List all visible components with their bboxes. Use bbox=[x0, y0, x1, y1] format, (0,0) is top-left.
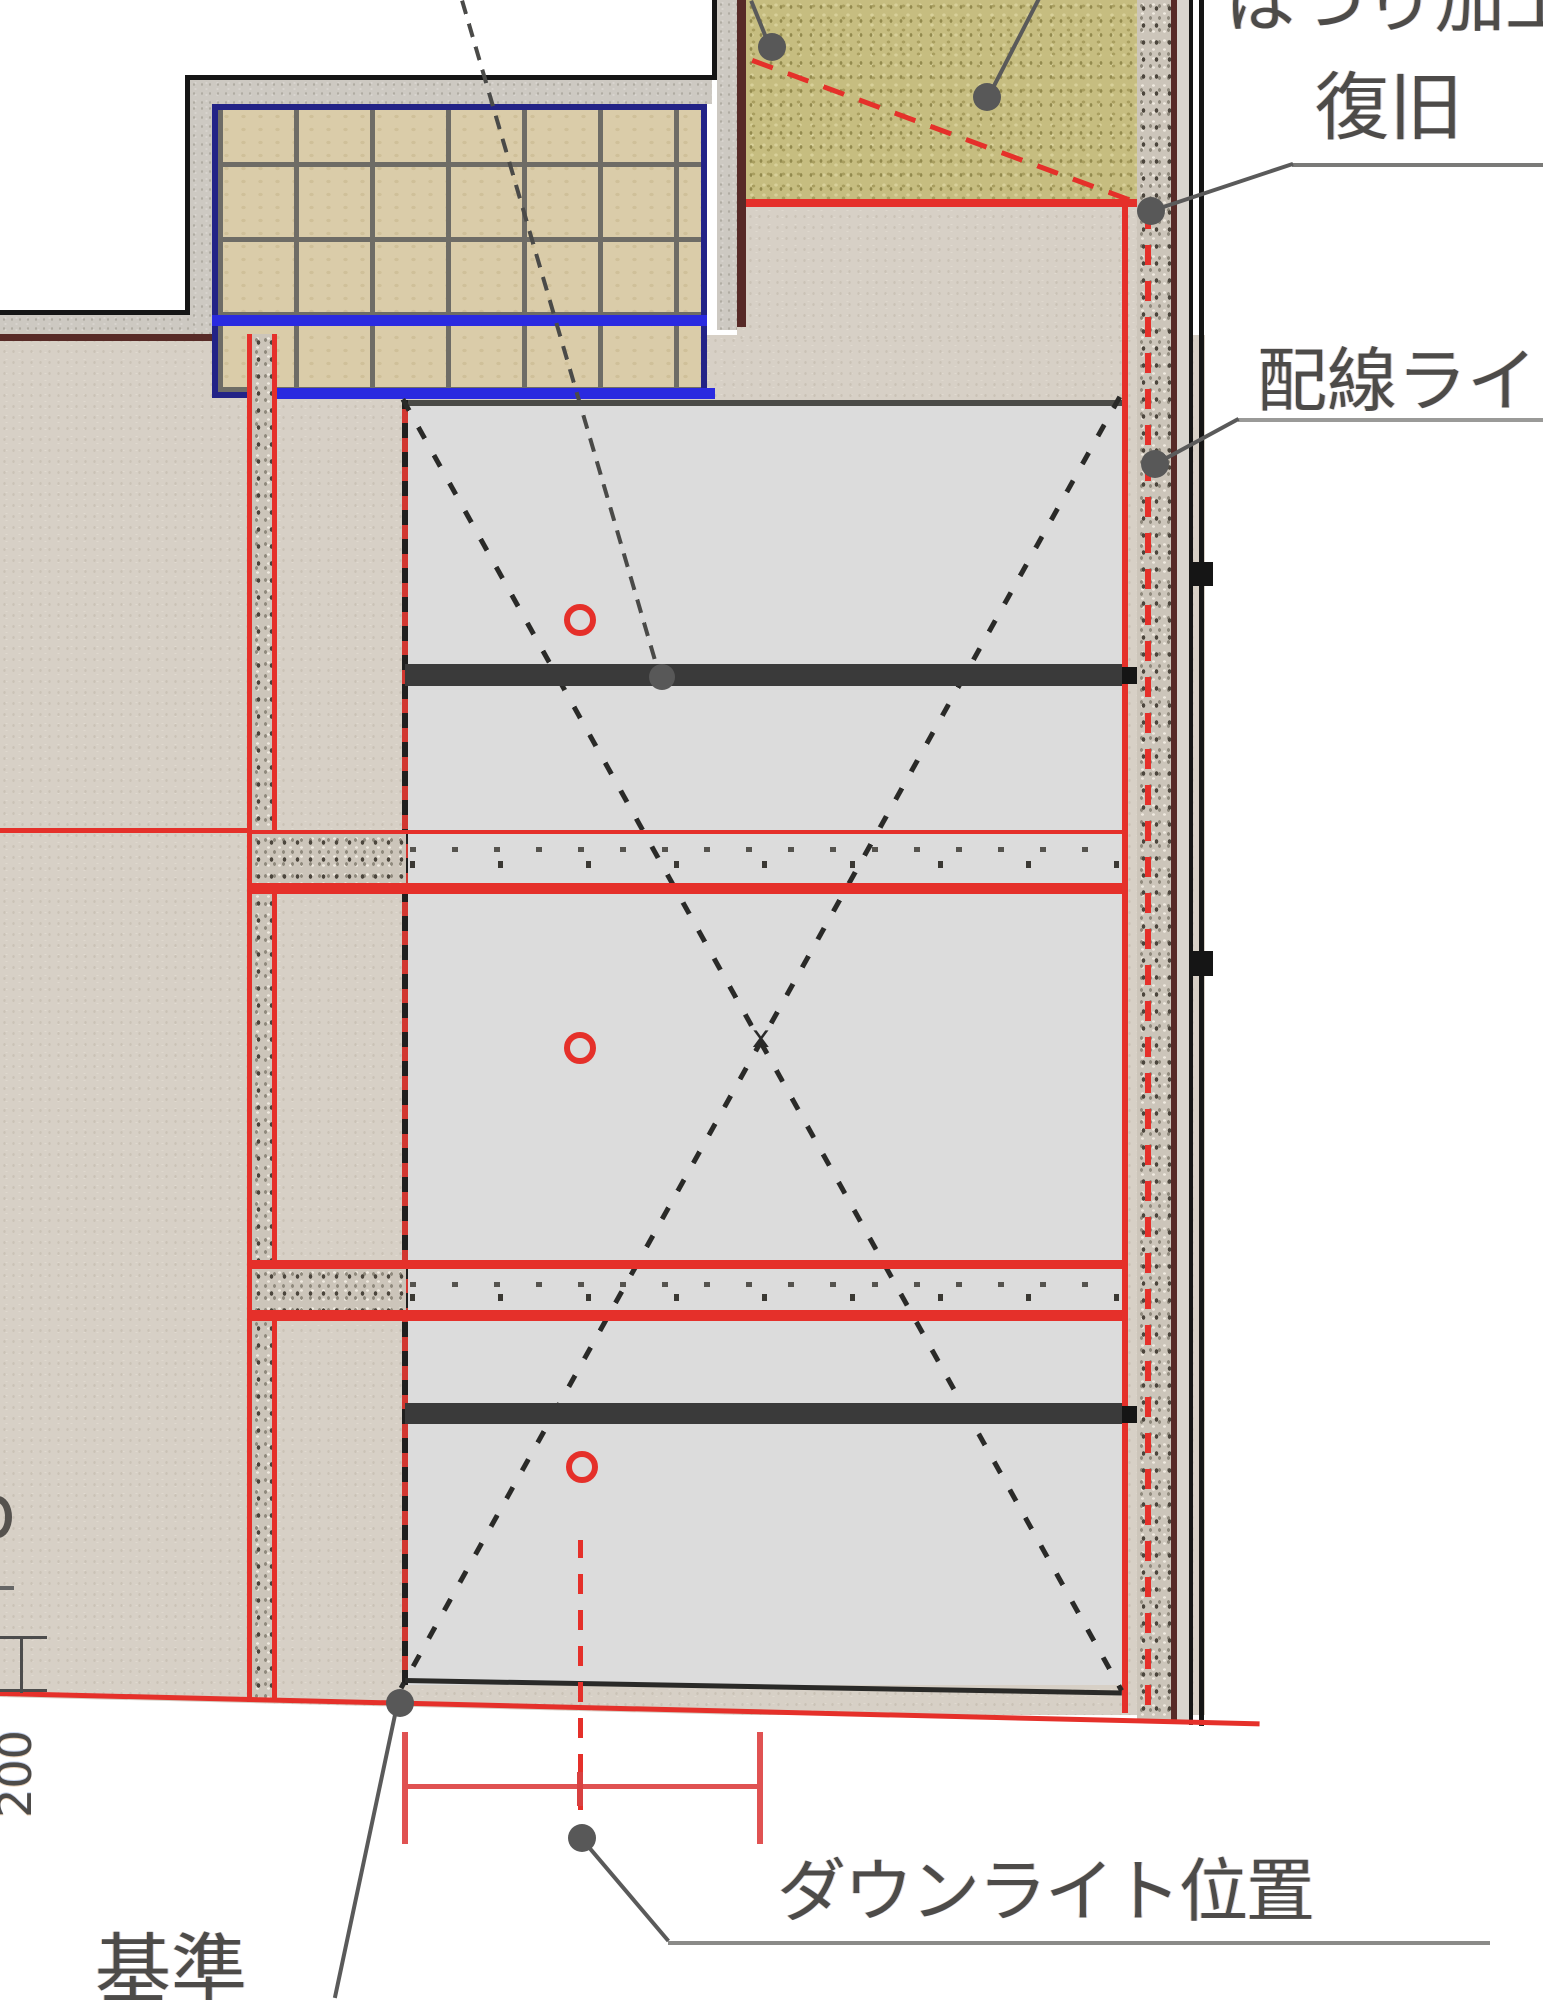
downlight-circle-2 bbox=[564, 1032, 596, 1064]
layout-line-green-bottom bbox=[737, 199, 1148, 207]
wall-face-line-a bbox=[1189, 0, 1193, 1725]
downlight-circle-1 bbox=[564, 604, 596, 636]
band2-top-line bbox=[250, 1260, 1122, 1269]
mortar-band-top bbox=[190, 80, 712, 104]
band1-bottom-line bbox=[250, 883, 1122, 894]
node-downlight bbox=[568, 1824, 596, 1852]
node-green-1 bbox=[758, 33, 786, 61]
diagonal-center-mark: x bbox=[752, 1022, 770, 1054]
node-restoration bbox=[1137, 197, 1165, 225]
downlight-label-underline bbox=[668, 1941, 1490, 1945]
band2-dot-row bbox=[410, 1282, 1122, 1287]
downlight-position-label: ダウンライト位置 bbox=[777, 1856, 1313, 1928]
edge-tick bbox=[0, 1586, 14, 1590]
dim200-tick-top bbox=[0, 1636, 47, 1639]
band1-top-line bbox=[250, 830, 1122, 834]
node-datum bbox=[386, 1689, 414, 1717]
mortar-band-left bbox=[190, 104, 212, 334]
concrete-field-upper-right bbox=[737, 200, 1137, 340]
band2-dot-row2 bbox=[410, 1294, 1122, 1301]
node-wiring bbox=[1141, 450, 1169, 478]
band1-dot-row bbox=[410, 847, 1122, 852]
tile-bottom-line bbox=[255, 388, 715, 399]
tile-split-line bbox=[212, 315, 707, 326]
band2-bottom-line bbox=[250, 1310, 1122, 1321]
wiring-line-label: 配線ライン bbox=[1257, 345, 1543, 419]
band1-left-fill bbox=[252, 834, 406, 888]
panel-left-dashed-edge bbox=[402, 400, 408, 1685]
wall-clip-2 bbox=[1191, 951, 1213, 976]
downlight-centerline bbox=[578, 1540, 583, 1810]
ceiling-bar-1 bbox=[405, 664, 1122, 686]
tile-area bbox=[212, 104, 707, 398]
mortar-band-notch bbox=[0, 315, 190, 334]
node-green-2 bbox=[973, 83, 1001, 111]
dim200-tick-bottom bbox=[0, 1689, 47, 1692]
layout-line-left-margin bbox=[0, 828, 250, 833]
dim200-text: 200 bbox=[0, 1719, 37, 1829]
wall-face-line-b bbox=[1199, 0, 1204, 1727]
ceiling-plan-drawing: x 200 bbox=[0, 0, 1543, 2000]
layout-line-right-vert bbox=[1122, 203, 1128, 1713]
datum-label: 基準 bbox=[95, 1930, 247, 2000]
mortar-band-right bbox=[717, 0, 737, 330]
note-top-clip: はつり加工 bbox=[1225, 0, 1543, 44]
wall-aggregate-column bbox=[1137, 0, 1171, 1722]
band2-left-fill bbox=[252, 1268, 406, 1312]
dim-dl-mid-tick bbox=[577, 1772, 583, 1806]
node-bar1 bbox=[649, 664, 675, 690]
leader-restoration-horiz bbox=[1292, 163, 1543, 167]
ceiling-bar-2 bbox=[405, 1403, 1122, 1424]
layout-line-left-a bbox=[247, 334, 252, 1702]
restoration-label: 復旧 bbox=[1315, 70, 1463, 148]
dim200-line bbox=[20, 1637, 23, 1693]
layout-line-left-b bbox=[272, 334, 277, 1702]
panel-top-edge bbox=[405, 400, 1122, 406]
band1-dot-row2 bbox=[410, 861, 1122, 868]
wall-clip-1 bbox=[1191, 562, 1213, 586]
note-top-partial-text: はつり加工 bbox=[1225, 0, 1543, 40]
furring-strip-left bbox=[252, 334, 272, 1702]
downlight-circle-3 bbox=[566, 1451, 598, 1483]
insulation-hatch-area bbox=[746, 0, 1137, 203]
wall-line-vertical bbox=[737, 0, 746, 327]
wiring-dashed-line bbox=[1145, 211, 1151, 1705]
wall-plaster-gap bbox=[1177, 0, 1189, 1724]
